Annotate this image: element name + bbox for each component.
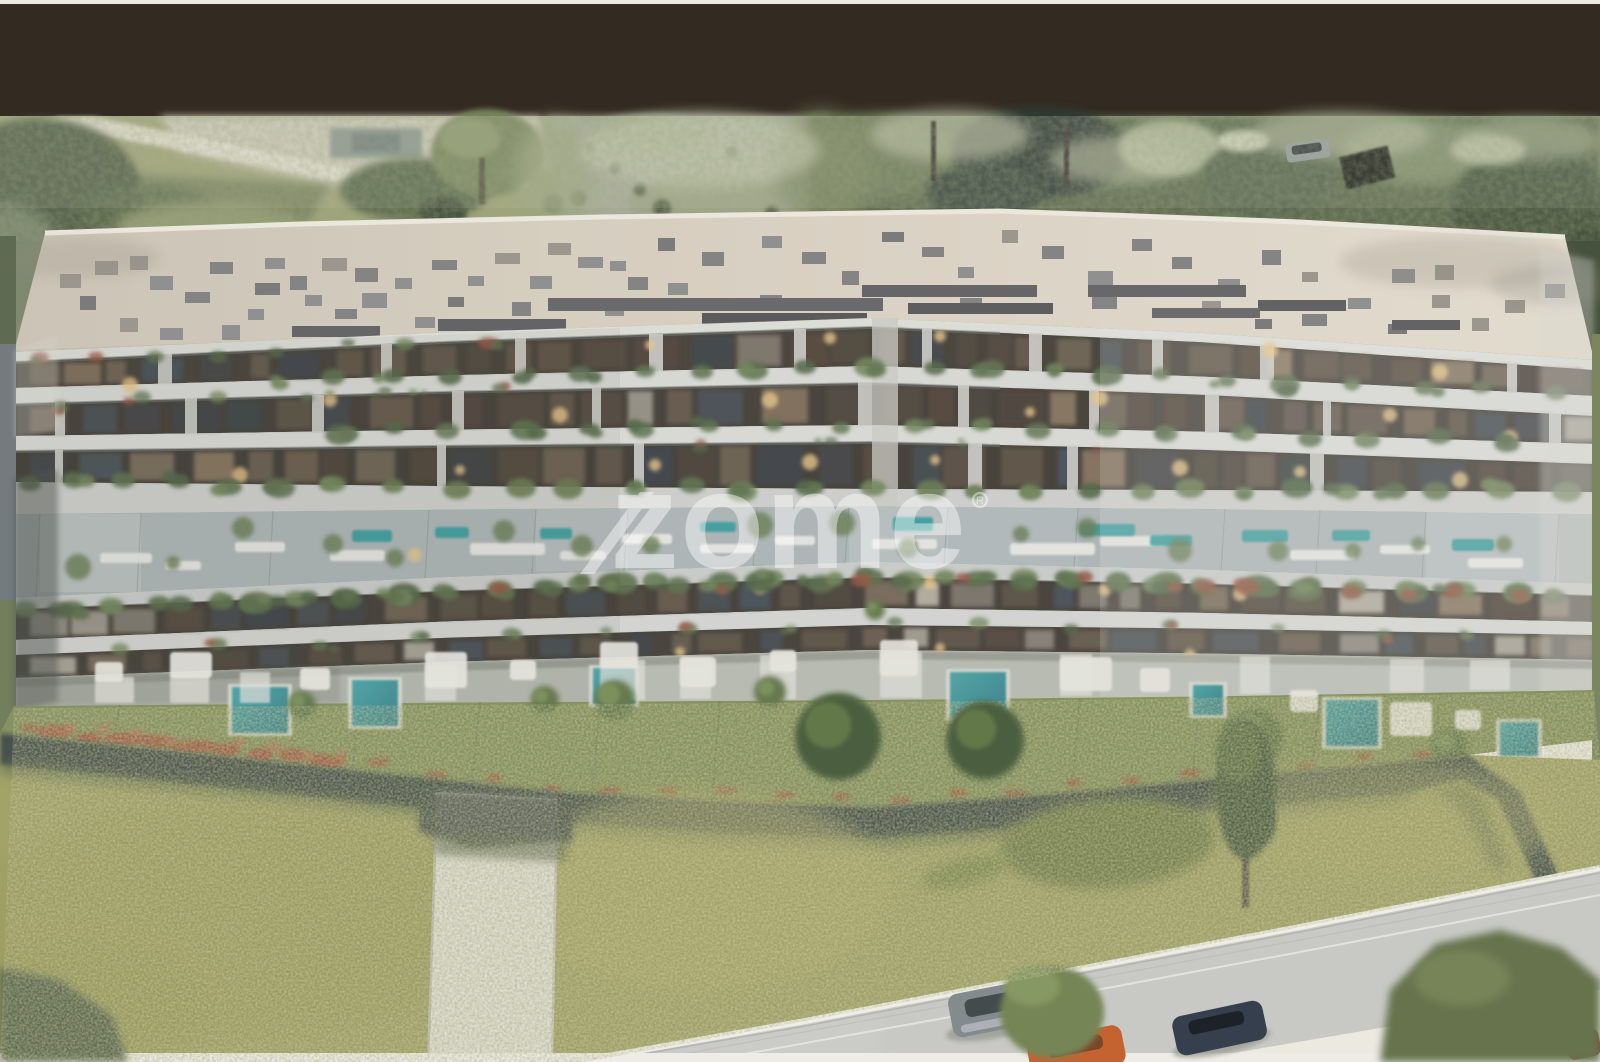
svg-text:R: R: [976, 495, 984, 507]
svg-text:zome: zome: [610, 444, 967, 598]
